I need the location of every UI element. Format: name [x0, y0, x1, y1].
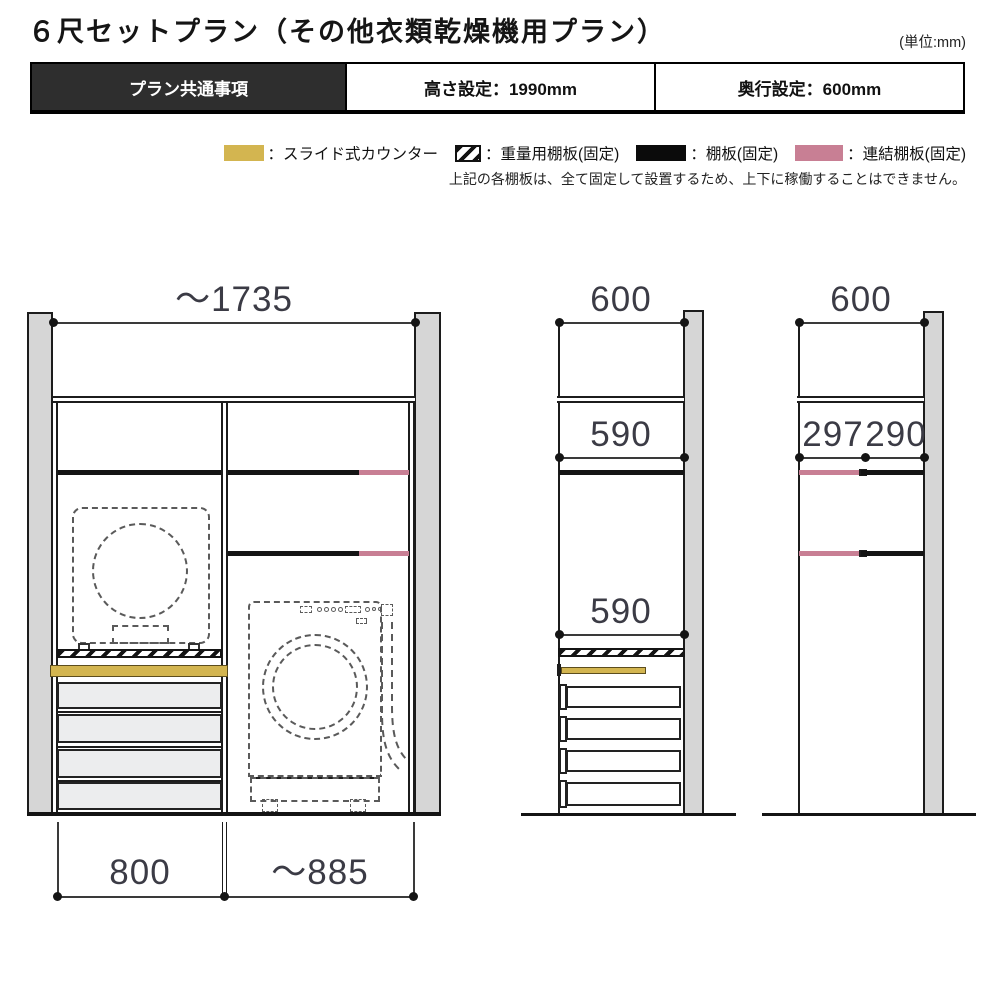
drawer-side-2	[566, 718, 681, 740]
drawer-rim	[57, 746, 222, 748]
back-panel	[923, 311, 944, 815]
dimension-label-right-column: ～885	[250, 855, 390, 890]
side-panel-right	[414, 312, 441, 815]
link-shelf-right-1	[359, 470, 409, 475]
legend-label: ：棚板(固定)	[690, 142, 778, 164]
shelf-fixed-right-2	[228, 551, 359, 556]
slide-counter-swatch-icon	[224, 145, 264, 161]
shelf-fixed-right-1	[228, 470, 359, 475]
dryer-control-button	[356, 618, 367, 624]
heavy-duty-shelf	[558, 648, 685, 657]
top-panel	[557, 396, 684, 403]
drawer-side-4	[566, 782, 681, 806]
legend-label: ：スライド式カウンター	[268, 142, 439, 164]
link-shelf-right-2	[359, 551, 409, 556]
dimension-line	[57, 896, 414, 898]
legend: ：スライド式カウンター ：重量用棚板(固定) ：棚板(固定) ：連結棚板(固定)	[224, 142, 967, 164]
dryer-display	[345, 606, 361, 613]
heavy-shelf-swatch-icon	[455, 145, 481, 162]
drawer-1	[57, 682, 222, 709]
dimension-label-lower: 590	[571, 594, 671, 629]
center-divider	[221, 403, 228, 813]
shelf-fixed-1	[861, 470, 924, 475]
extension-line-double	[222, 822, 227, 896]
link-shelf-1	[799, 470, 861, 475]
dimension-line	[559, 457, 684, 459]
legend-item-heavy-shelf: ：重量用棚板(固定)	[455, 142, 619, 164]
slide-counter	[50, 665, 228, 677]
dryer-knob	[331, 607, 336, 612]
washer-drum	[92, 523, 188, 619]
spec-tab-common: プラン共通事項	[32, 64, 345, 110]
dimension-dot	[861, 453, 870, 462]
slide-counter-side	[561, 667, 646, 674]
dimension-label-width-top: ～1735	[139, 282, 329, 317]
link-shelf-2	[799, 551, 861, 556]
legend-item-link-shelf: ：連結棚板(固定)	[795, 142, 966, 164]
dryer-door-inner	[272, 644, 358, 730]
dimension-line	[559, 322, 684, 324]
dimension-label-left-column: 800	[90, 855, 190, 890]
shelf-fixed	[559, 470, 684, 475]
dimension-label-right: 290	[856, 417, 936, 452]
plan-sheet: ６尺セットプラン（その他衣類乾燥機用プラン） (単位:mm) プラン共通事項 高…	[0, 0, 1000, 1000]
spec-bar: プラン共通事項 高さ設定：1990mm 奥行設定：600mm	[30, 62, 965, 114]
legend-label: ：重量用棚板(固定)	[485, 142, 619, 164]
unit-note: (単位:mm)	[899, 31, 966, 52]
dimension-line	[53, 322, 415, 324]
legend-item-shelf-fixed: ：棚板(固定)	[636, 142, 778, 164]
legend-item-slide-counter: ：スライド式カウンター	[224, 142, 439, 164]
side-panel-left	[27, 312, 53, 815]
extension-line	[413, 822, 415, 896]
extension-line	[57, 822, 59, 896]
dryer-knob	[324, 607, 329, 612]
dimension-dot	[555, 453, 564, 462]
shelf-fixed-left	[58, 470, 221, 475]
dryer-knob	[317, 607, 322, 612]
dimension-dot	[795, 318, 804, 327]
top-panel	[797, 396, 924, 403]
drawer-side-1	[566, 686, 681, 708]
legend-label: ：連結棚板(固定)	[847, 142, 966, 164]
drawer-3	[57, 749, 222, 778]
washer-control	[112, 625, 169, 644]
dryer-knob	[365, 607, 370, 612]
spec-height-setting: 高さ設定：1990mm	[345, 64, 654, 110]
dimension-line	[559, 634, 684, 636]
dimension-dot	[920, 318, 929, 327]
cabinet-base-line	[27, 812, 441, 816]
back-panel	[683, 310, 704, 815]
dimension-dot	[220, 892, 229, 901]
floor-line	[762, 813, 976, 816]
drawer-4	[57, 782, 222, 810]
drawer-2	[57, 714, 222, 743]
dimension-dot	[49, 318, 58, 327]
dimension-dot	[795, 453, 804, 462]
dimension-dot	[920, 453, 929, 462]
legend-note: 上記の各棚板は、全て固定して設置するため、上下に稼働することはできません。	[449, 169, 966, 189]
page-title: ６尺セットプラン（その他衣類乾燥機用プラン）	[28, 10, 666, 49]
dimension-dot	[411, 318, 420, 327]
dimension-dot	[555, 630, 564, 639]
dimension-dot	[680, 318, 689, 327]
dimension-dot	[680, 453, 689, 462]
shelf-fixed-2	[861, 551, 924, 556]
shelf-fixed-swatch-icon	[636, 145, 686, 161]
dryer-knob	[338, 607, 343, 612]
drawer-side-3	[566, 750, 681, 772]
dryer-control-button	[300, 606, 312, 613]
dimension-line	[799, 322, 924, 324]
dimension-dot	[53, 892, 62, 901]
dryer-foot-left	[262, 799, 278, 812]
dryer-foot-right	[350, 799, 366, 812]
heavy-duty-shelf	[57, 649, 222, 658]
dimension-label-depth: 600	[571, 282, 671, 317]
drawer-rim	[57, 711, 222, 713]
dryer-hose	[372, 600, 410, 780]
dryer-base-top	[250, 777, 380, 779]
floor-line	[521, 813, 736, 816]
top-panel	[53, 396, 415, 403]
dimension-dot	[409, 892, 418, 901]
dimension-dot	[680, 630, 689, 639]
dimension-label-upper: 590	[571, 417, 671, 452]
dimension-label-depth: 600	[811, 282, 911, 317]
spec-depth-setting: 奥行設定：600mm	[654, 64, 963, 110]
link-shelf-swatch-icon	[795, 145, 843, 161]
dimension-dot	[555, 318, 564, 327]
